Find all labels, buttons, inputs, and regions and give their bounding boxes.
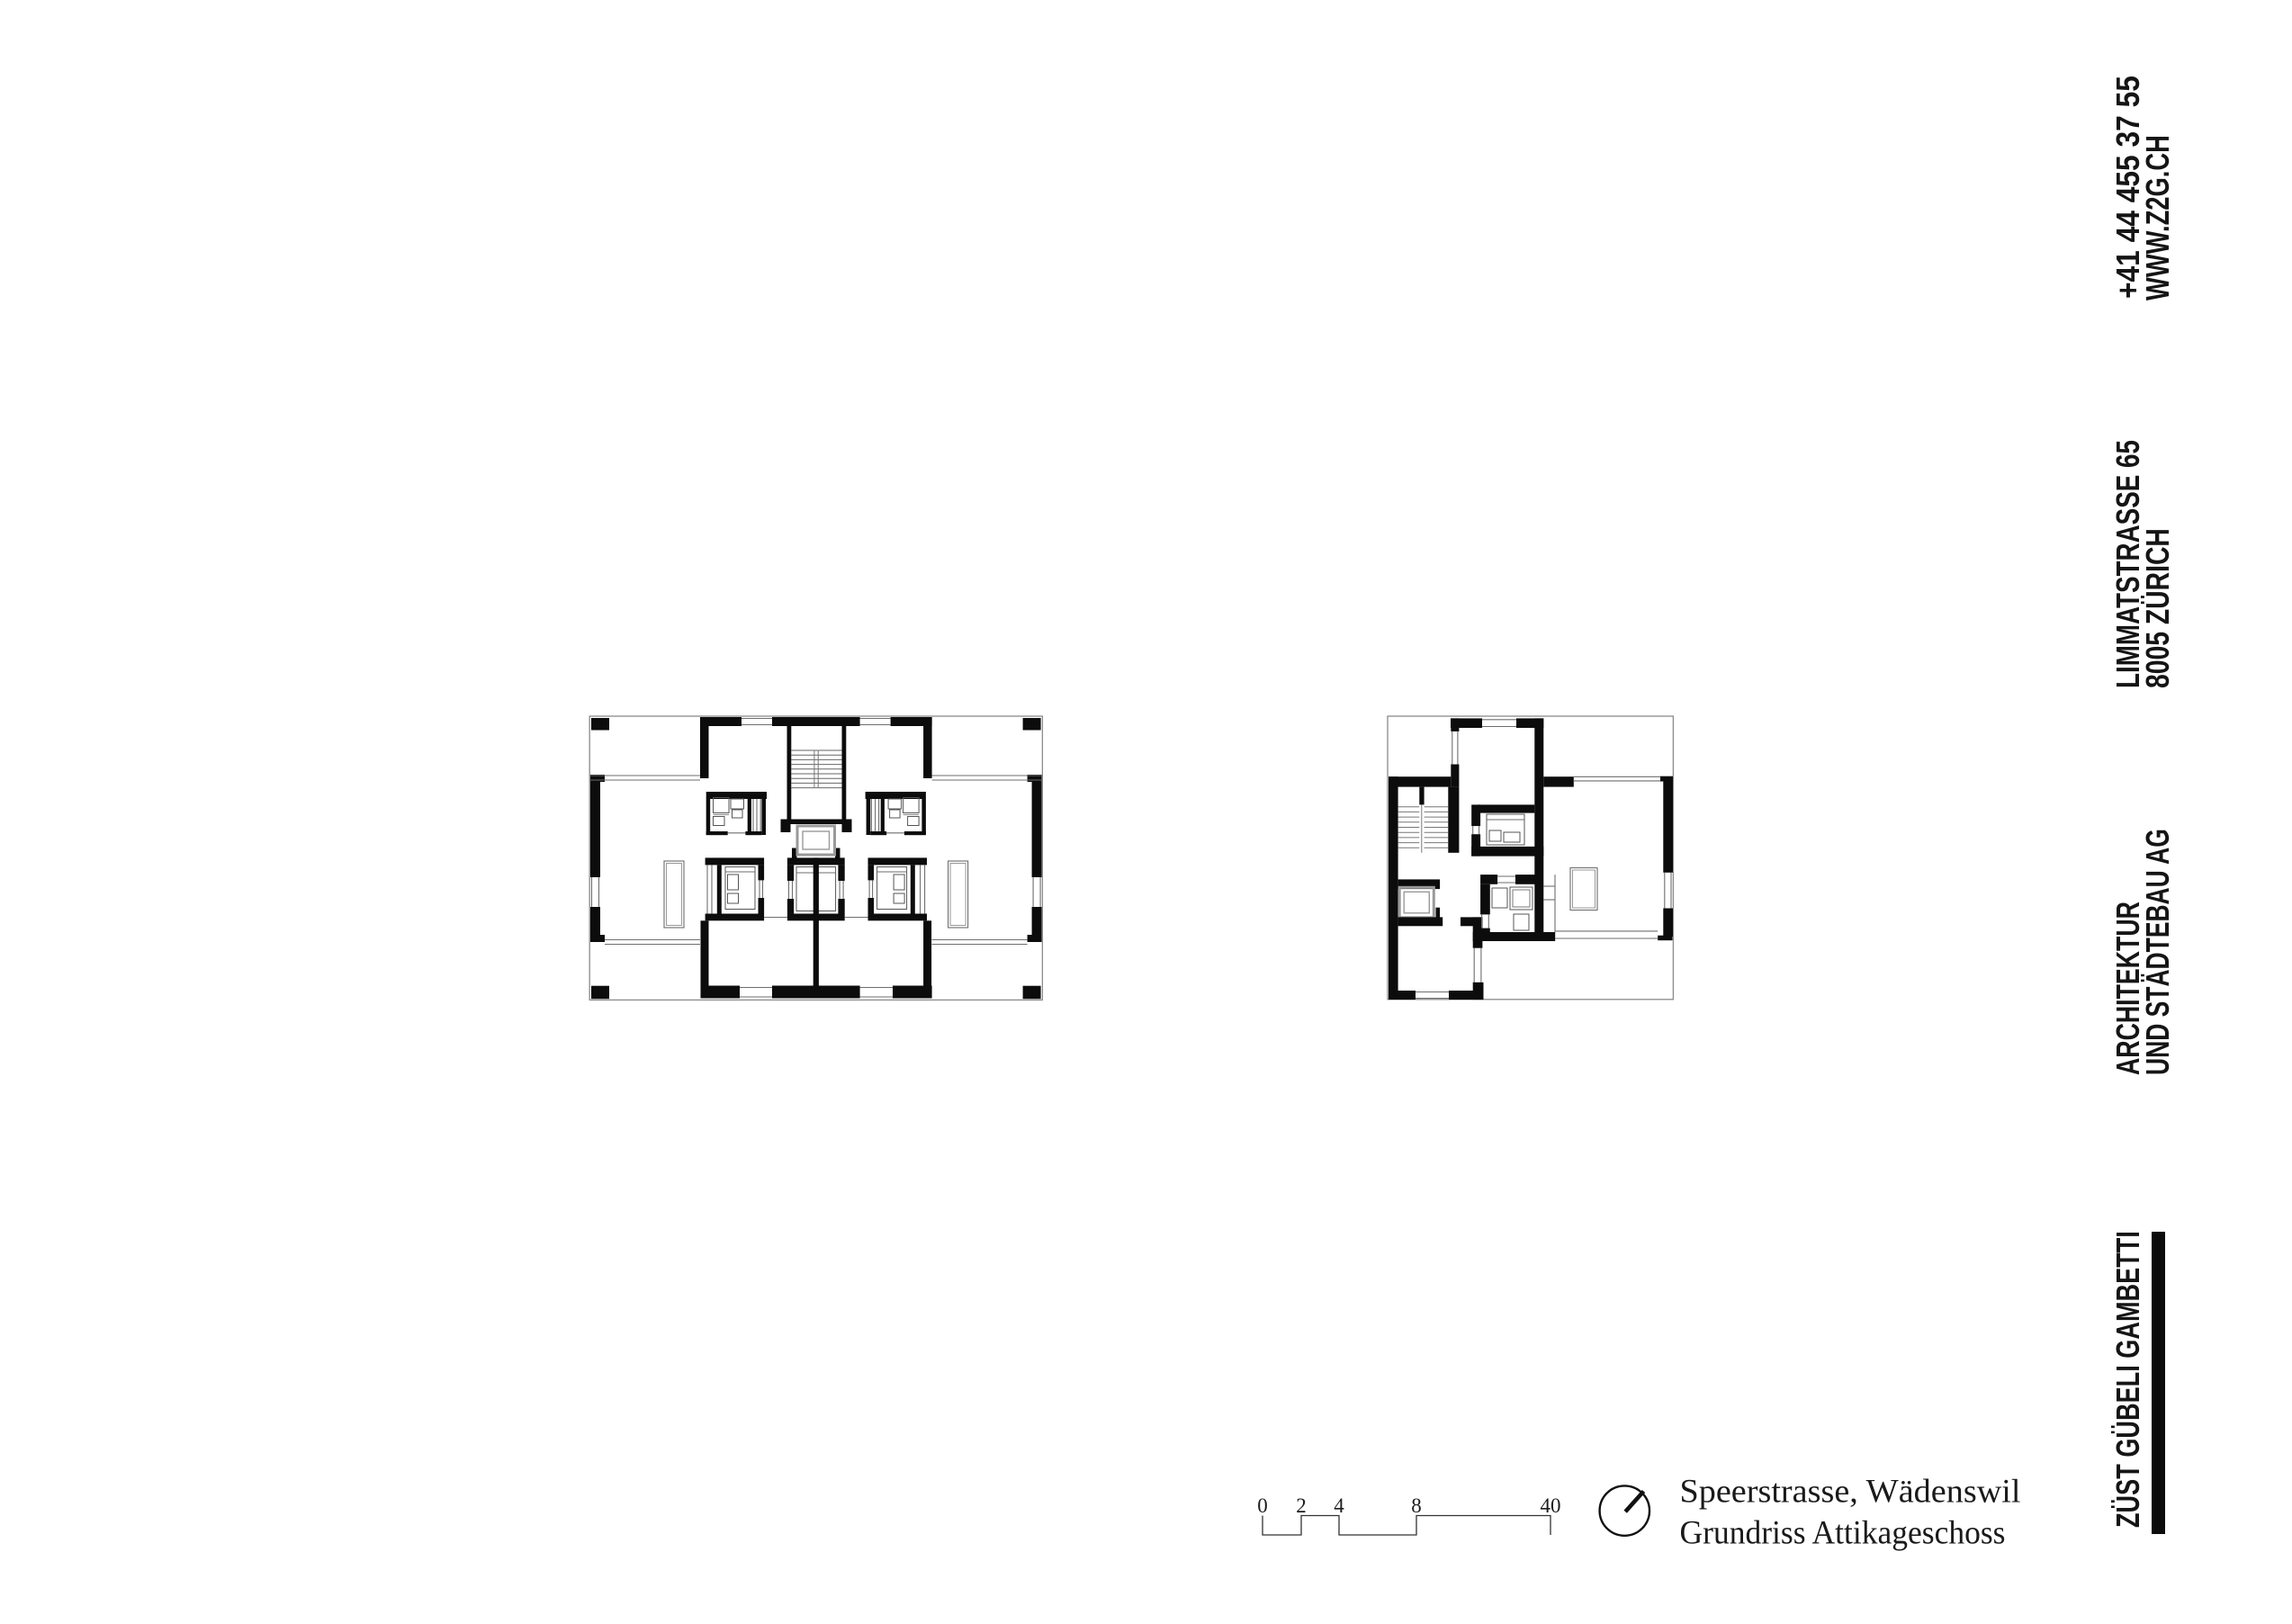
svg-text:40: 40 — [1541, 1494, 1561, 1517]
svg-text:4: 4 — [1334, 1494, 1344, 1517]
svg-text:Speerstrasse, Wädenswil: Speerstrasse, Wädenswil — [1680, 1474, 2021, 1511]
svg-text:Grundriss Attikageschoss: Grundriss Attikageschoss — [1680, 1515, 2006, 1552]
svg-text:ZÜST GÜBELI GAMBETTI: ZÜST GÜBELI GAMBETTI — [2109, 1231, 2146, 1528]
svg-text:8: 8 — [1411, 1494, 1422, 1517]
svg-text:0: 0 — [1257, 1494, 1268, 1517]
svg-text:2: 2 — [1296, 1494, 1307, 1517]
svg-text:WWW.Z2G.CH: WWW.Z2G.CH — [2139, 135, 2176, 301]
svg-text:UND STÄDTEBAU AG: UND STÄDTEBAU AG — [2139, 829, 2176, 1075]
svg-text:8005 ZÜRICH: 8005 ZÜRICH — [2140, 528, 2176, 688]
